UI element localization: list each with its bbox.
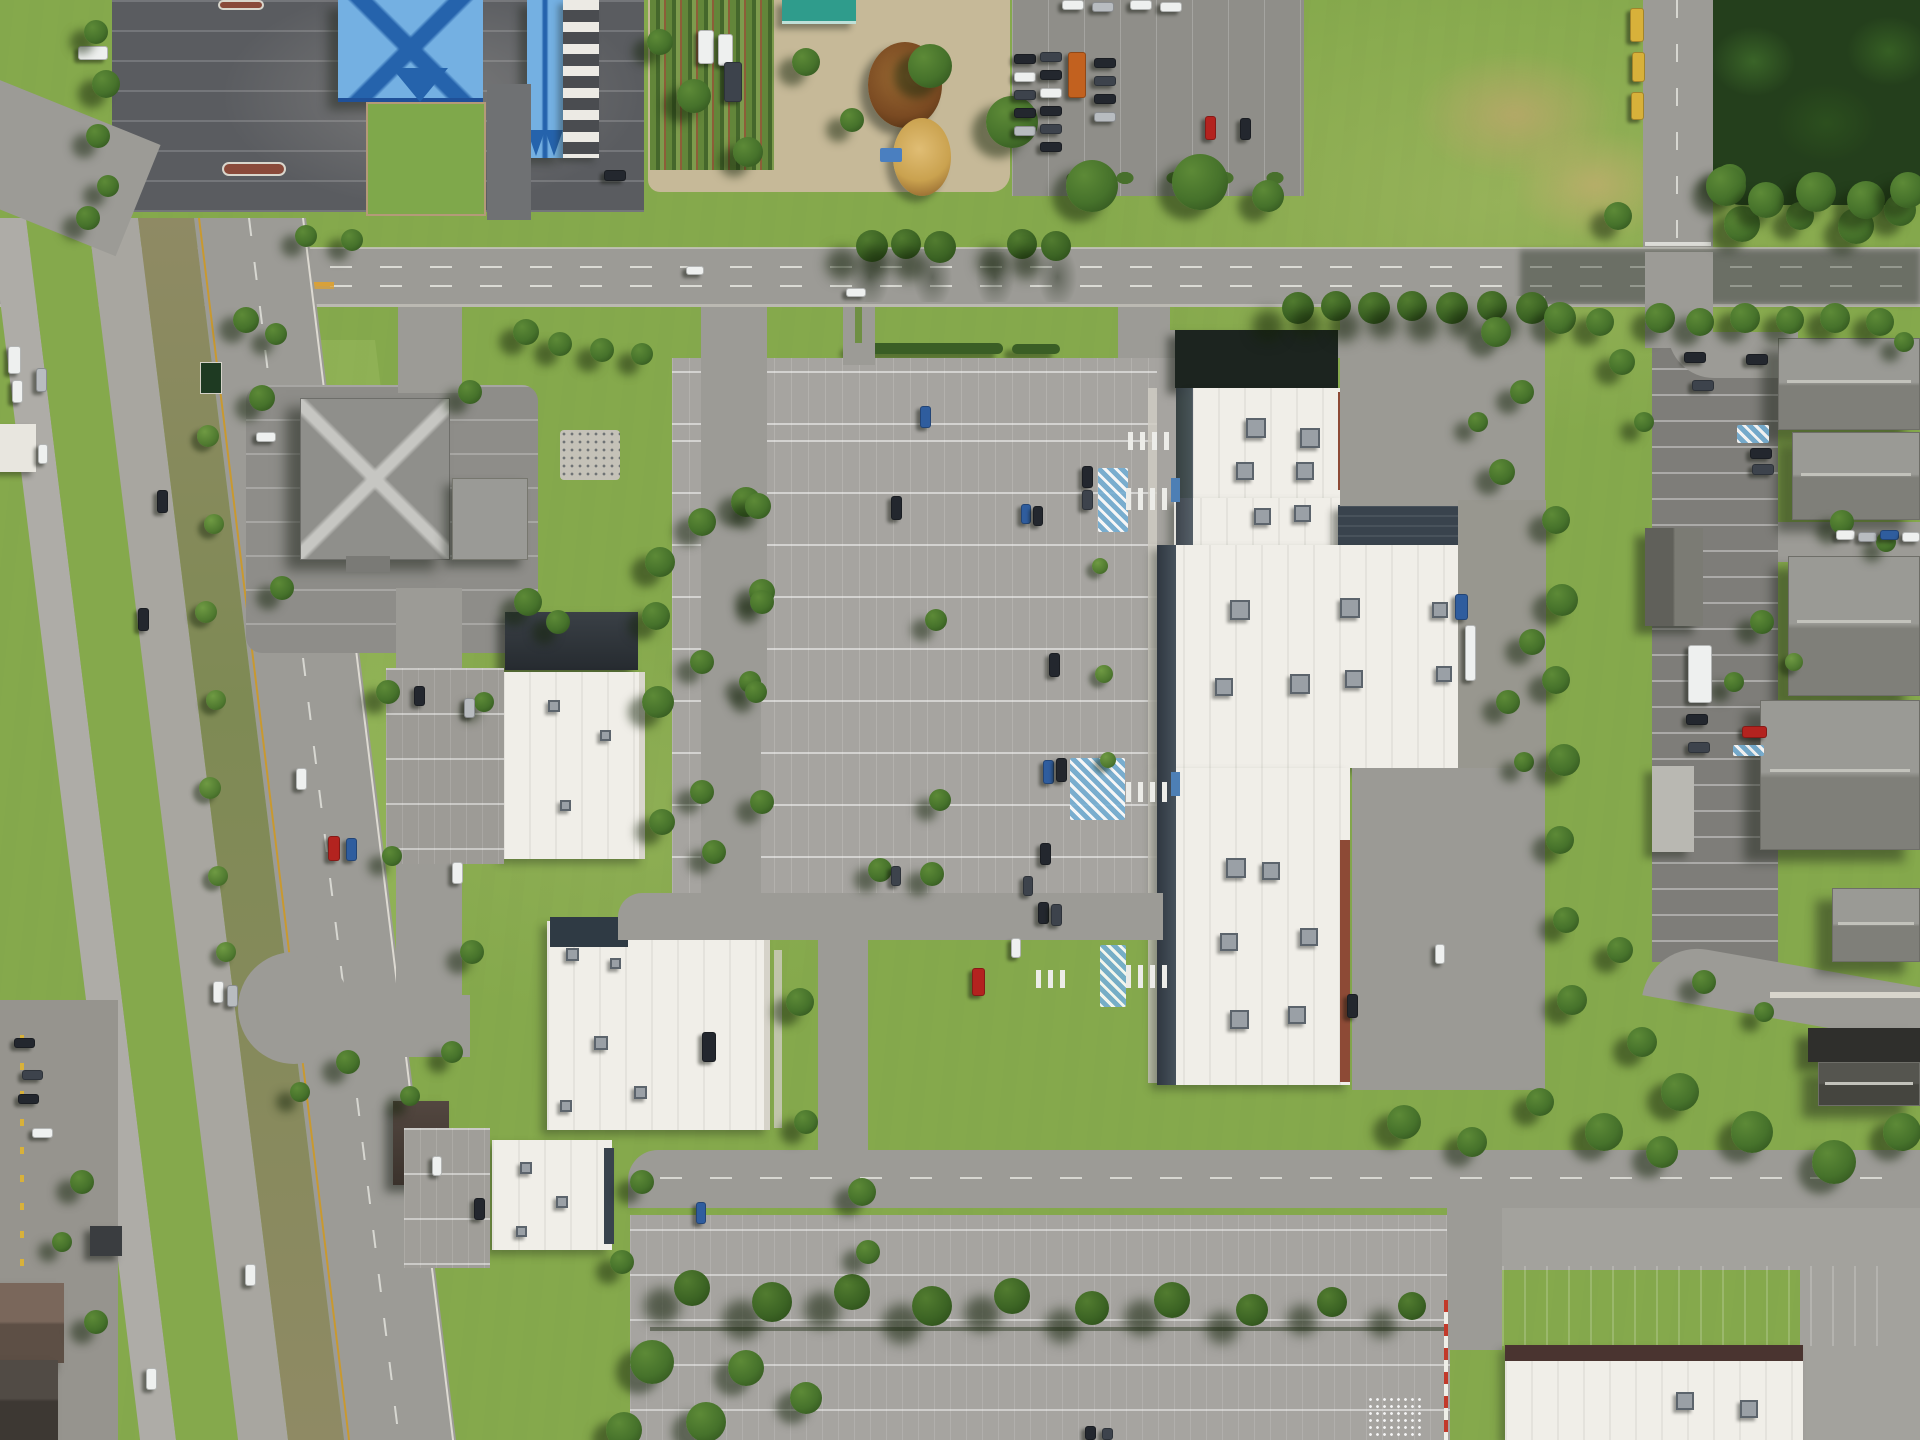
parked-vehicle — [698, 30, 714, 64]
parked-vehicle — [296, 768, 307, 790]
parked-vehicle — [1742, 726, 1767, 738]
parked-vehicle — [1902, 532, 1920, 542]
parked-vehicle — [604, 170, 626, 181]
parked-vehicle — [432, 1156, 442, 1176]
parked-vehicle — [138, 608, 149, 631]
parked-vehicle — [1684, 352, 1706, 363]
parked-vehicle — [1082, 490, 1093, 510]
parked-vehicle — [474, 1198, 485, 1220]
parked-vehicle — [14, 1038, 35, 1048]
parked-vehicle — [146, 1368, 157, 1390]
parked-vehicle — [686, 266, 704, 275]
parked-vehicle — [1435, 944, 1445, 964]
parked-vehicle — [1014, 72, 1036, 82]
parked-vehicle — [1040, 106, 1062, 116]
parked-vehicle — [1040, 52, 1062, 62]
parked-vehicle — [1686, 714, 1708, 725]
parked-vehicle — [38, 444, 48, 464]
parked-vehicle — [1746, 354, 1768, 365]
parked-vehicle — [1094, 94, 1116, 104]
parked-vehicle — [1836, 530, 1855, 540]
parked-vehicle — [1688, 742, 1710, 753]
parked-vehicle — [1040, 142, 1062, 152]
parked-vehicle — [1023, 876, 1033, 896]
parked-vehicle — [1043, 760, 1054, 784]
parked-vehicle — [846, 288, 866, 297]
parked-vehicle — [724, 62, 742, 102]
parked-vehicle — [452, 862, 463, 884]
parked-vehicle — [328, 836, 340, 861]
parked-vehicle — [1632, 52, 1645, 82]
parked-vehicle — [1750, 448, 1772, 459]
parked-vehicle — [1094, 58, 1116, 68]
parked-vehicle — [1205, 116, 1216, 140]
parked-vehicle — [702, 1032, 716, 1062]
parked-vehicle — [256, 432, 276, 442]
parked-vehicle — [1102, 1428, 1113, 1440]
parked-vehicle — [213, 981, 224, 1003]
parked-vehicle — [1858, 532, 1877, 542]
cars-layer — [0, 0, 1920, 1440]
parked-vehicle — [1752, 464, 1774, 475]
parked-vehicle — [1630, 8, 1644, 42]
parked-vehicle — [157, 490, 168, 513]
parked-vehicle — [1692, 380, 1714, 391]
parked-vehicle — [32, 1128, 53, 1138]
aerial-photo-scene — [0, 0, 1920, 1440]
parked-vehicle — [12, 380, 23, 403]
parked-vehicle — [1040, 124, 1062, 134]
parked-vehicle — [1465, 625, 1476, 681]
parked-vehicle — [1040, 88, 1062, 98]
parked-vehicle — [1688, 645, 1712, 703]
parked-vehicle — [1033, 506, 1043, 526]
parked-vehicle — [1014, 54, 1036, 64]
parked-vehicle — [1014, 90, 1036, 100]
parked-vehicle — [1014, 126, 1036, 136]
parked-vehicle — [891, 866, 901, 886]
parked-vehicle — [1068, 52, 1086, 98]
parked-vehicle — [245, 1264, 256, 1286]
parked-vehicle — [18, 1094, 39, 1104]
parked-vehicle — [1347, 994, 1358, 1018]
parked-vehicle — [1094, 112, 1116, 122]
parked-vehicle — [22, 1070, 43, 1080]
parked-vehicle — [1094, 76, 1116, 86]
parked-vehicle — [1062, 0, 1084, 10]
parked-vehicle — [1085, 1426, 1096, 1440]
parked-vehicle — [464, 698, 475, 718]
parked-vehicle — [36, 368, 47, 392]
parked-vehicle — [1014, 108, 1036, 118]
parked-vehicle — [1455, 594, 1468, 620]
parked-vehicle — [8, 346, 21, 374]
parked-vehicle — [1092, 2, 1114, 12]
parked-vehicle — [1038, 902, 1049, 924]
parked-vehicle — [696, 1202, 706, 1224]
parked-vehicle — [1056, 758, 1067, 782]
parked-vehicle — [1040, 843, 1051, 865]
parked-vehicle — [1049, 653, 1060, 677]
parked-vehicle — [1160, 2, 1182, 12]
parked-vehicle — [1051, 904, 1062, 926]
parked-vehicle — [972, 968, 985, 996]
parked-vehicle — [1631, 92, 1644, 120]
parked-vehicle — [920, 406, 931, 428]
parked-vehicle — [414, 686, 425, 706]
parked-vehicle — [891, 496, 902, 520]
parked-vehicle — [1040, 70, 1062, 80]
parked-vehicle — [1130, 0, 1152, 10]
parked-vehicle — [1011, 938, 1021, 958]
parked-vehicle — [1021, 504, 1031, 524]
parked-vehicle — [1082, 466, 1093, 488]
parked-vehicle — [1240, 118, 1251, 140]
parked-vehicle — [346, 838, 357, 861]
parked-vehicle — [227, 985, 238, 1007]
parked-vehicle — [1880, 530, 1899, 540]
